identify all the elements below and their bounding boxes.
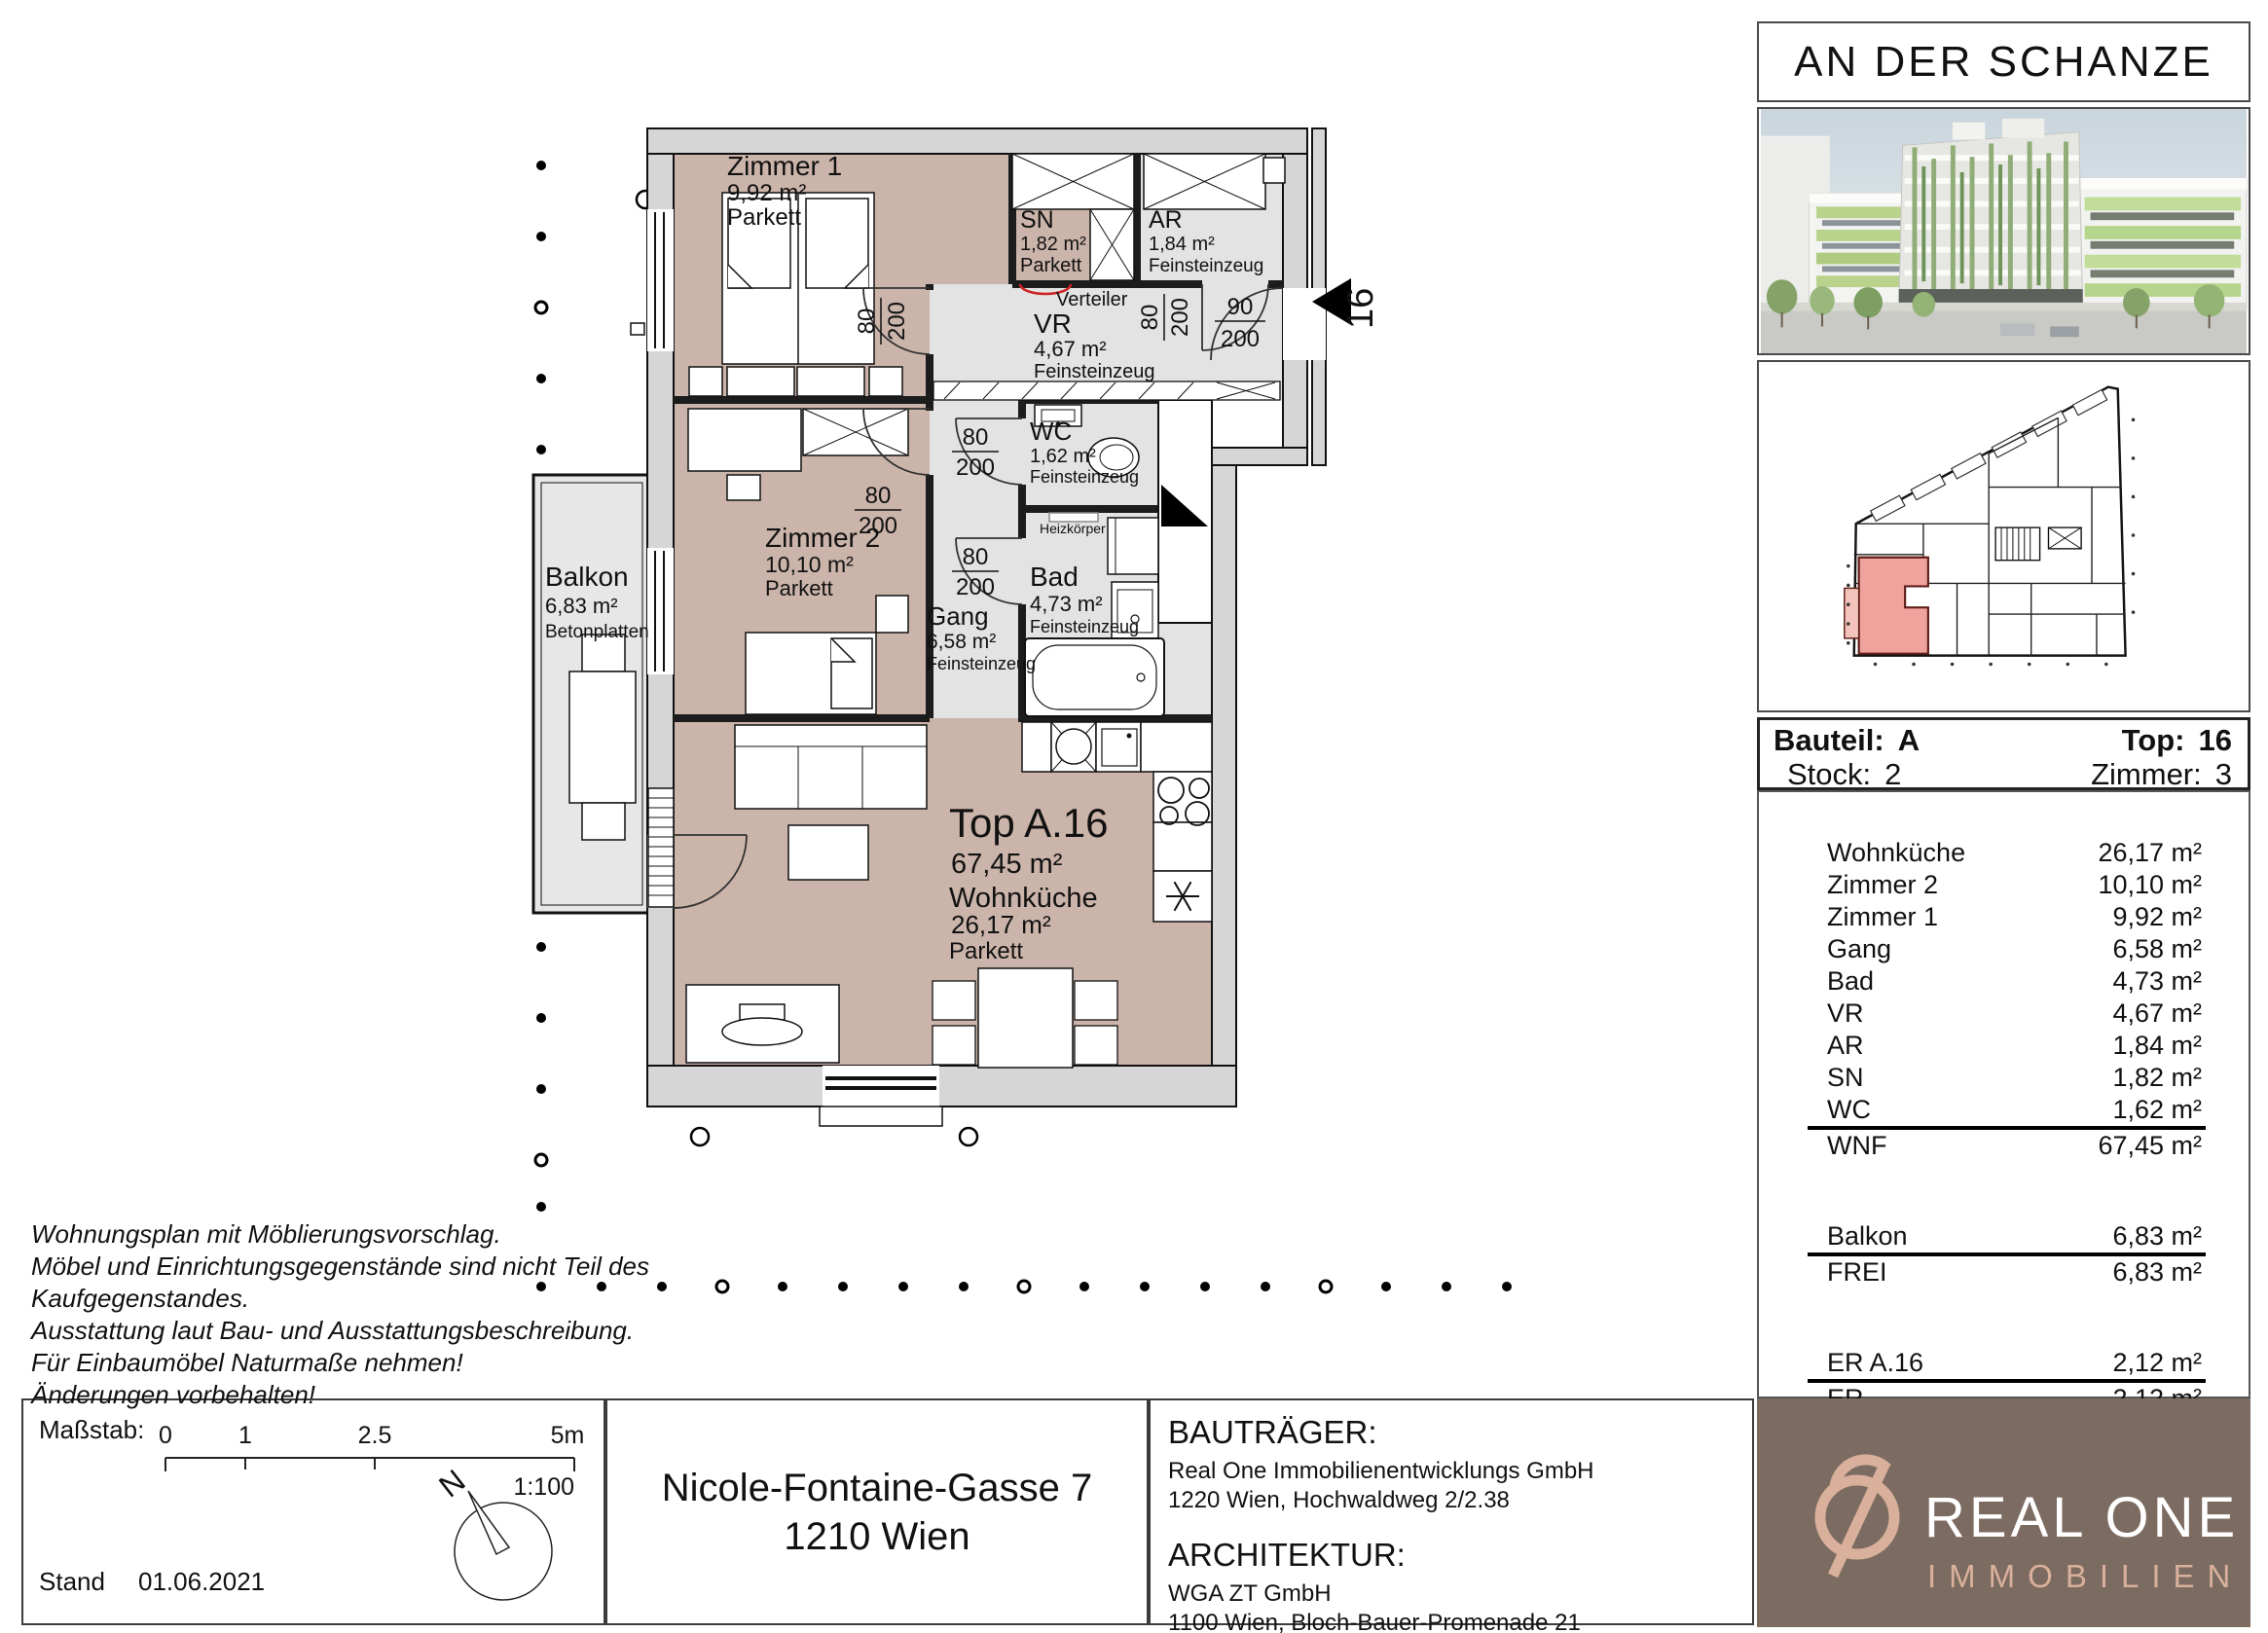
gang-name: Gang — [927, 601, 989, 631]
interior-walls — [674, 154, 1283, 722]
balkon-name: Balkon — [545, 562, 629, 592]
zimmer1-area: 9,92 m² — [727, 180, 806, 206]
table-row: ER A.162,12 m² — [1808, 1347, 2206, 1383]
verteiler-label: Verteiler — [1056, 289, 1128, 310]
table-row: VR4,67 m² — [1808, 998, 2206, 1030]
area-table: Wohnküche26,17 m² Zimmer 210,10 m² Zimme… — [1757, 790, 2250, 1398]
wc-area: 1,62 m² — [1030, 446, 1096, 467]
zimmer-label: Zimmer: — [2091, 757, 2202, 791]
zimmer2-name: Zimmer 2 — [765, 523, 880, 553]
svg-text:200: 200 — [884, 302, 910, 341]
table-row: Zimmer 19,92 m² — [1808, 901, 2206, 933]
svg-text:80: 80 — [865, 483, 892, 509]
sn-area: 1,82 m² — [1020, 234, 1086, 255]
row-label: Wohnküche — [1827, 837, 1965, 869]
row-value: 2,12 m² — [2112, 1347, 2202, 1379]
sn-floor: Parkett — [1020, 255, 1082, 276]
wohnkueche-name: Wohnküche — [949, 883, 1098, 914]
wc-name: WC — [1030, 417, 1072, 446]
real-one-logo: REAL ONE IMMOBILIEN — [1757, 1398, 2250, 1627]
row-value: 67,45 m² — [2098, 1130, 2202, 1162]
dim-zimmer1-door: 80 200 — [854, 298, 910, 345]
bad-area: 4,73 m² — [1030, 592, 1103, 616]
gang-floor: Feinsteinzeug — [927, 654, 1036, 673]
top-value: 16 — [2199, 723, 2232, 757]
windows — [647, 209, 1326, 1126]
disclaimer-line: Für Einbaumöbel Naturmaße nehmen! — [31, 1347, 654, 1379]
ar-floor: Feinsteinzeug — [1149, 256, 1263, 276]
stove-icon — [1158, 778, 1209, 825]
unit-direction-arrow-icon — [1312, 278, 1351, 325]
svg-text:200: 200 — [956, 574, 995, 600]
architect-address: 1100 Wien, Bloch-Bauer-Promenade 21 — [1168, 1609, 1752, 1633]
balcony-railing — [648, 788, 674, 907]
dim-entry-door: 90 200 — [1215, 294, 1265, 352]
living-furniture — [686, 725, 1117, 1068]
kitchen — [1022, 722, 1212, 922]
wc-fixtures — [1035, 405, 1139, 477]
unit-area: 67,45 m² — [951, 849, 1063, 880]
row-label: WC — [1827, 1094, 1871, 1126]
ar-area: 1,84 m² — [1149, 234, 1215, 255]
stock-value: 2 — [1884, 757, 1901, 791]
row-value: 6,58 m² — [2112, 933, 2202, 965]
row-value: 10,10 m² — [2098, 869, 2202, 901]
svg-text:80: 80 — [963, 544, 989, 570]
row-value: 26,17 m² — [2098, 837, 2202, 869]
table-row: Bad4,73 m² — [1808, 965, 2206, 998]
wardrobes — [1012, 154, 1285, 280]
address-line1: Nicole-Fontaine-Gasse 7 — [662, 1464, 1092, 1512]
wohnkueche-floor: Parkett — [949, 938, 1023, 964]
dim-zimmer2-door: 80 200 — [855, 483, 901, 539]
row-label: VR — [1827, 998, 1864, 1030]
zimmer-value: 3 — [2215, 757, 2232, 791]
balcony — [533, 475, 650, 913]
svg-text:200: 200 — [956, 454, 995, 481]
developer-address: 1220 Wien, Hochwaldweg 2/2.38 — [1168, 1486, 1752, 1515]
row-value: 1,84 m² — [2112, 1030, 2202, 1062]
balkon-floor: Betonplatten — [545, 622, 649, 642]
disclaimer-line: Änderungen vorbehalten! — [31, 1379, 654, 1411]
room-labels: Zimmer 1 9,92 m² Parkett SN 1,82 m² Park… — [545, 151, 1263, 964]
appliance-asterisk-icon — [1166, 882, 1199, 910]
shaft — [1158, 400, 1212, 623]
survey-markers — [620, 191, 977, 1145]
verteiler-marker — [1020, 284, 1071, 294]
row-label: SN — [1827, 1062, 1864, 1094]
row-value: 6,83 m² — [2112, 1256, 2202, 1288]
row-label: Gang — [1827, 933, 1891, 965]
bad-fixtures — [1025, 513, 1164, 716]
table-row-wnf: WNF67,45 m² — [1808, 1130, 2206, 1162]
bad-floor: Feinsteinzeug — [1030, 617, 1139, 636]
disclaimer-line: Wohnungsplan mit Möblierungsvorschlag. — [31, 1218, 654, 1251]
table-row: Gang6,58 m² — [1808, 933, 2206, 965]
address-box: Nicole-Fontaine-Gasse 7 1210 Wien — [605, 1398, 1149, 1625]
unit-name: Top A.16 — [949, 800, 1108, 846]
wc-floor: Feinsteinzeug — [1030, 467, 1139, 487]
stock-label: Stock: — [1787, 757, 1871, 791]
table-row: Zimmer 210,10 m² — [1808, 869, 2206, 901]
unit-number: 16 — [1340, 288, 1381, 329]
keyplan-highlighted-unit — [1859, 558, 1928, 654]
ar-name: AR — [1149, 206, 1183, 234]
table-row: Balkon6,83 m² — [1808, 1220, 2206, 1256]
table-row: AR1,84 m² — [1808, 1030, 2206, 1062]
svg-text:80: 80 — [854, 308, 880, 335]
zimmer1-name: Zimmer 1 — [727, 151, 842, 181]
row-value: 1,62 m² — [2112, 1094, 2202, 1126]
zimmer1-floor: Parkett — [727, 204, 801, 231]
architect-name: WGA ZT GmbH — [1168, 1579, 1752, 1609]
svg-text:90: 90 — [1227, 294, 1254, 320]
vr-name: VR — [1034, 308, 1072, 339]
vr-floor: Feinsteinzeug — [1034, 361, 1155, 382]
unit-floors — [674, 154, 1283, 1066]
svg-text:200: 200 — [1167, 298, 1193, 337]
balkon-area: 6,83 m² — [545, 594, 618, 618]
keyplan-highlighted-balcony — [1845, 588, 1859, 637]
door-dimensions: 80 200 80 200 90 200 80 200 80 — [854, 294, 1265, 600]
zimmer1-furniture — [689, 193, 902, 396]
svg-text:80: 80 — [1137, 305, 1163, 331]
svg-text:200: 200 — [1221, 326, 1260, 352]
heizkoerper-label: Heizkörper — [1040, 521, 1106, 536]
row-label: FREI — [1827, 1256, 1887, 1288]
developer-heading: BAUTRÄGER: — [1168, 1414, 1752, 1451]
disclaimer-text: Wohnungsplan mit Möblierungsvorschlag. M… — [31, 1218, 654, 1411]
row-label: WNF — [1827, 1130, 1886, 1162]
scale-box — [21, 1398, 605, 1625]
table-row: FREI6,83 m² — [1808, 1256, 2206, 1288]
bad-name: Bad — [1030, 562, 1079, 592]
disclaimer-line: Möbel und Einrichtungsgegenstände sind n… — [31, 1251, 654, 1283]
row-value: 9,92 m² — [2112, 901, 2202, 933]
table-row: WC1,62 m² — [1808, 1094, 2206, 1130]
wohnkueche-area: 26,17 m² — [951, 910, 1051, 939]
zimmer2-floor: Parkett — [765, 576, 833, 600]
row-label: ER A.16 — [1827, 1347, 1923, 1379]
building-render-image — [1757, 107, 2250, 355]
row-value: 1,82 m² — [2112, 1062, 2202, 1094]
row-label: Zimmer 1 — [1827, 901, 1938, 933]
keyplan-box — [1757, 360, 2250, 712]
keyplan-drawing — [1759, 362, 2249, 710]
sn-name: SN — [1020, 206, 1054, 234]
floorplan-document: Nicole-Fontaine-Gasse 7 1210 Wien BAUTRÄ… — [0, 0, 2268, 1633]
vr-area: 4,67 m² — [1034, 337, 1107, 361]
row-value: 6,83 m² — [2112, 1220, 2202, 1252]
top-label: Top: — [2122, 723, 2185, 757]
svg-text:200: 200 — [859, 513, 897, 539]
dim-vr-door: 80 200 — [1137, 294, 1193, 341]
row-label: Bad — [1827, 965, 1874, 998]
plot-boundary-dots — [535, 161, 1512, 1292]
developer-name: Real One Immobilienentwicklungs GmbH — [1168, 1457, 1752, 1486]
developer-architect-box: BAUTRÄGER: Real One Immobilienentwicklun… — [1149, 1398, 1754, 1625]
address-line2: 1210 Wien — [784, 1512, 969, 1561]
disclaimer-line: Kaufgegenstandes. — [31, 1283, 654, 1315]
bauteil-label: Bauteil: — [1774, 723, 1884, 757]
zimmer2-area: 10,10 m² — [765, 552, 854, 577]
dim-bad-door: 80 200 — [952, 544, 999, 600]
row-value: 4,67 m² — [2112, 998, 2202, 1030]
entrance-marker: 16 — [1312, 278, 1381, 329]
dim-wc-door: 80 200 — [952, 424, 999, 481]
building-render-illustration — [1759, 109, 2249, 353]
disclaimer-line: Ausstattung laut Bau- und Ausstattungsbe… — [31, 1315, 654, 1347]
table-row: SN1,82 m² — [1808, 1062, 2206, 1094]
logo-subtitle: IMMOBILIEN — [1927, 1558, 2243, 1594]
row-value: 4,73 m² — [2112, 965, 2202, 998]
row-label: AR — [1827, 1030, 1864, 1062]
gang-area: 6,58 m² — [927, 631, 996, 653]
project-title: AN DER SCHANZE — [1757, 21, 2250, 102]
logo-name: REAL ONE — [1924, 1486, 2239, 1549]
door-swings — [674, 284, 1283, 908]
row-label: Zimmer 2 — [1827, 869, 1938, 901]
zimmer2-furniture — [688, 409, 908, 714]
architect-heading: ARCHITEKTUR: — [1168, 1537, 1752, 1574]
svg-text:80: 80 — [963, 424, 989, 451]
bauteil-value: A — [1898, 723, 1920, 757]
unit-info-box: Bauteil:A Top:16 Stock:2 Zimmer:3 — [1757, 717, 2250, 790]
table-row: Wohnküche26,17 m² — [1808, 837, 2206, 869]
exterior-walls — [647, 128, 1326, 1107]
row-label: Balkon — [1827, 1220, 1908, 1252]
vr-cabinet — [933, 381, 1280, 400]
